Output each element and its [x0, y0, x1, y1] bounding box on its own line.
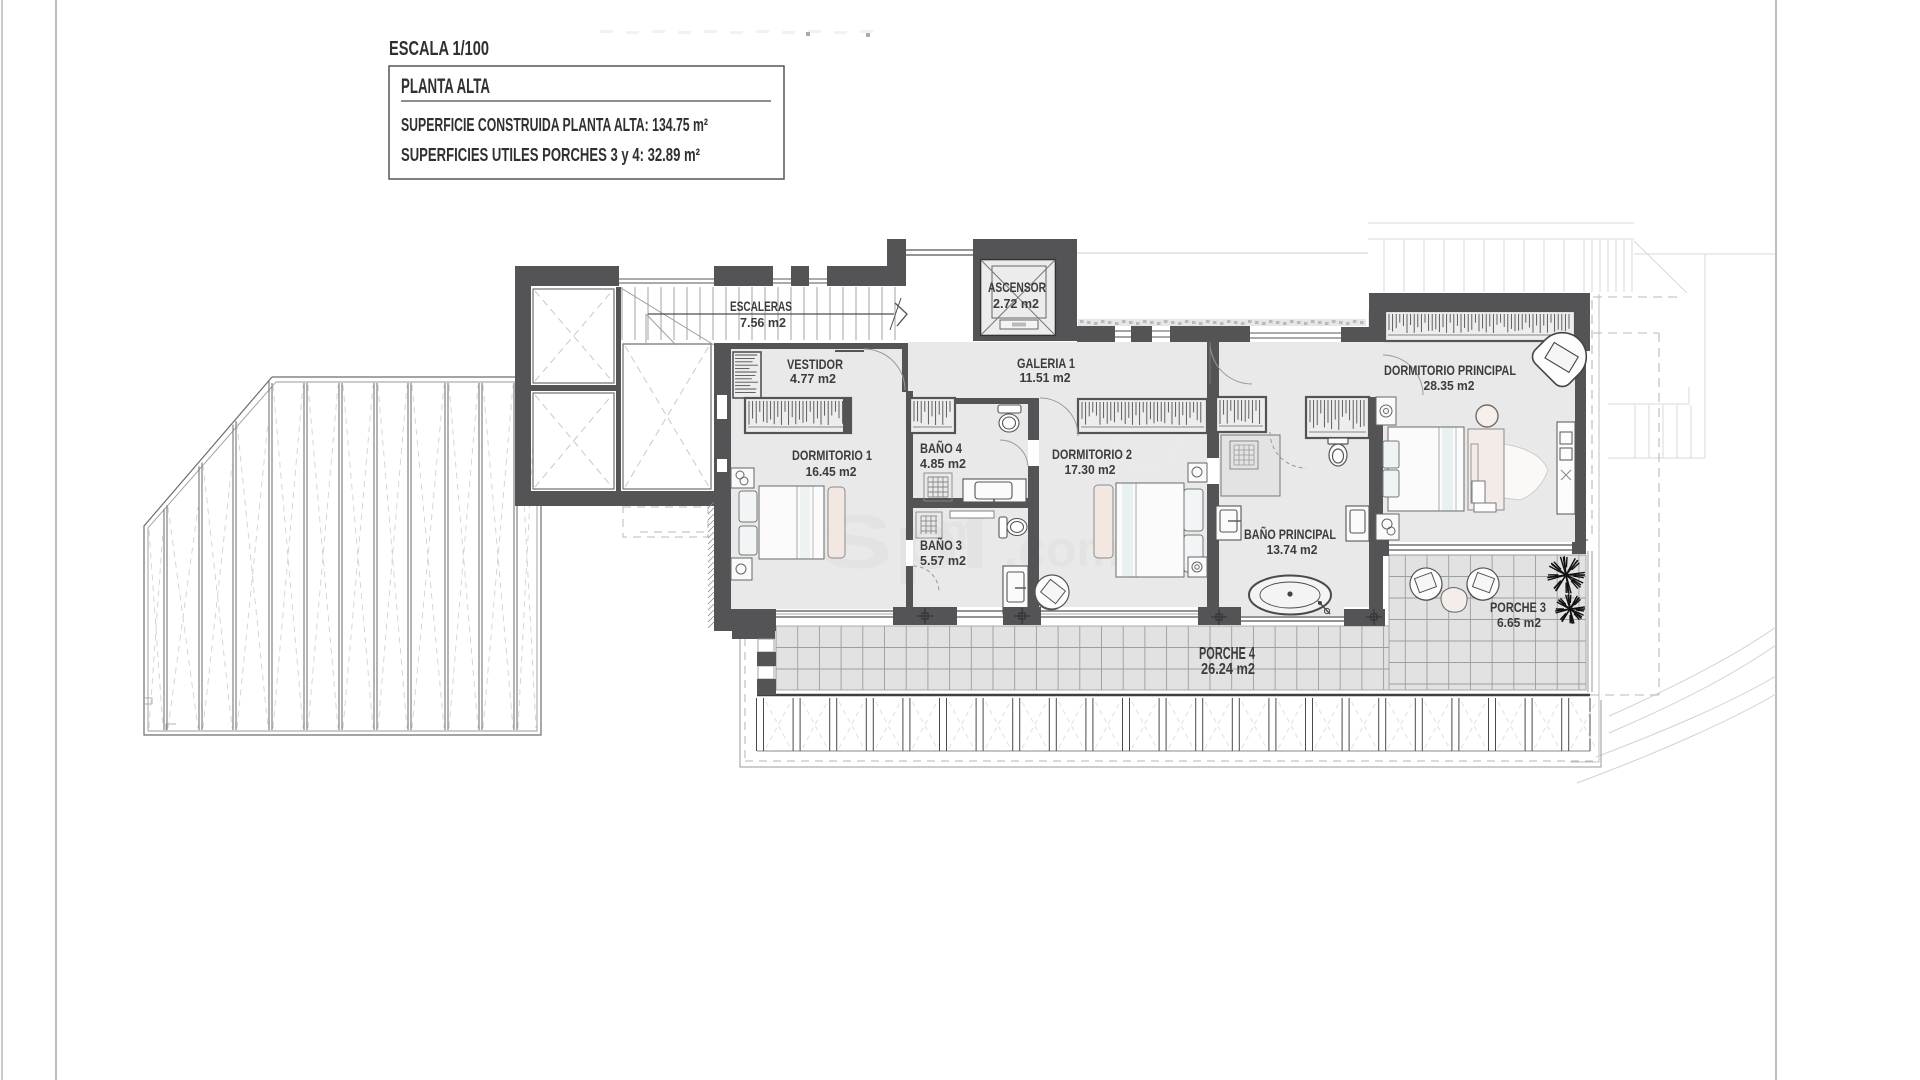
svg-text:5.57 m2: 5.57 m2: [920, 553, 966, 568]
svg-text:28.35 m2: 28.35 m2: [1424, 378, 1475, 393]
svg-text:4.85 m2: 4.85 m2: [920, 456, 966, 471]
svg-text:PORCHE 3: PORCHE 3: [1490, 599, 1546, 615]
svg-text:13.74 m2: 13.74 m2: [1267, 542, 1318, 557]
svg-text:BAÑO 4: BAÑO 4: [920, 439, 962, 456]
svg-text:DORMITORIO 2: DORMITORIO 2: [1052, 446, 1132, 462]
svg-text:7.56 m2: 7.56 m2: [740, 315, 786, 330]
svg-text:17.30 m2: 17.30 m2: [1065, 462, 1116, 477]
svg-text:ESCALERAS: ESCALERAS: [730, 298, 792, 314]
svg-text:2.72 m2: 2.72 m2: [993, 296, 1039, 311]
svg-text:SUPERFICIES UTILES PORCHES 3 y: SUPERFICIES UTILES PORCHES 3 y 4: 32.89 …: [401, 145, 700, 165]
svg-text:6.65 m2: 6.65 m2: [1497, 615, 1541, 630]
svg-text:VESTIDOR: VESTIDOR: [787, 356, 843, 372]
svg-text:4.77 m2: 4.77 m2: [790, 371, 836, 386]
svg-text:ESCALA 1/100: ESCALA 1/100: [389, 38, 489, 60]
svg-text:11.51 m2: 11.51 m2: [1020, 370, 1071, 385]
svg-text:BAÑO PRINCIPAL: BAÑO PRINCIPAL: [1244, 525, 1336, 542]
svg-text:DORMITORIO 1: DORMITORIO 1: [792, 447, 872, 463]
svg-text:GALERIA 1: GALERIA 1: [1017, 355, 1075, 371]
svg-text:16.45 m2: 16.45 m2: [806, 464, 857, 479]
svg-text:ASCENSOR: ASCENSOR: [988, 279, 1046, 295]
svg-text:BAÑO 3: BAÑO 3: [920, 536, 962, 553]
svg-text:PORCHE 4: PORCHE 4: [1199, 643, 1255, 663]
svg-text:26.24 m2: 26.24 m2: [1201, 661, 1255, 678]
svg-text:DORMITORIO PRINCIPAL: DORMITORIO PRINCIPAL: [1384, 362, 1516, 378]
svg-text:PLANTA ALTA: PLANTA ALTA: [401, 75, 490, 98]
svg-text:SUPERFICIE CONSTRUIDA PLANTA A: SUPERFICIE CONSTRUIDA PLANTA ALTA: 134.7…: [401, 115, 708, 135]
